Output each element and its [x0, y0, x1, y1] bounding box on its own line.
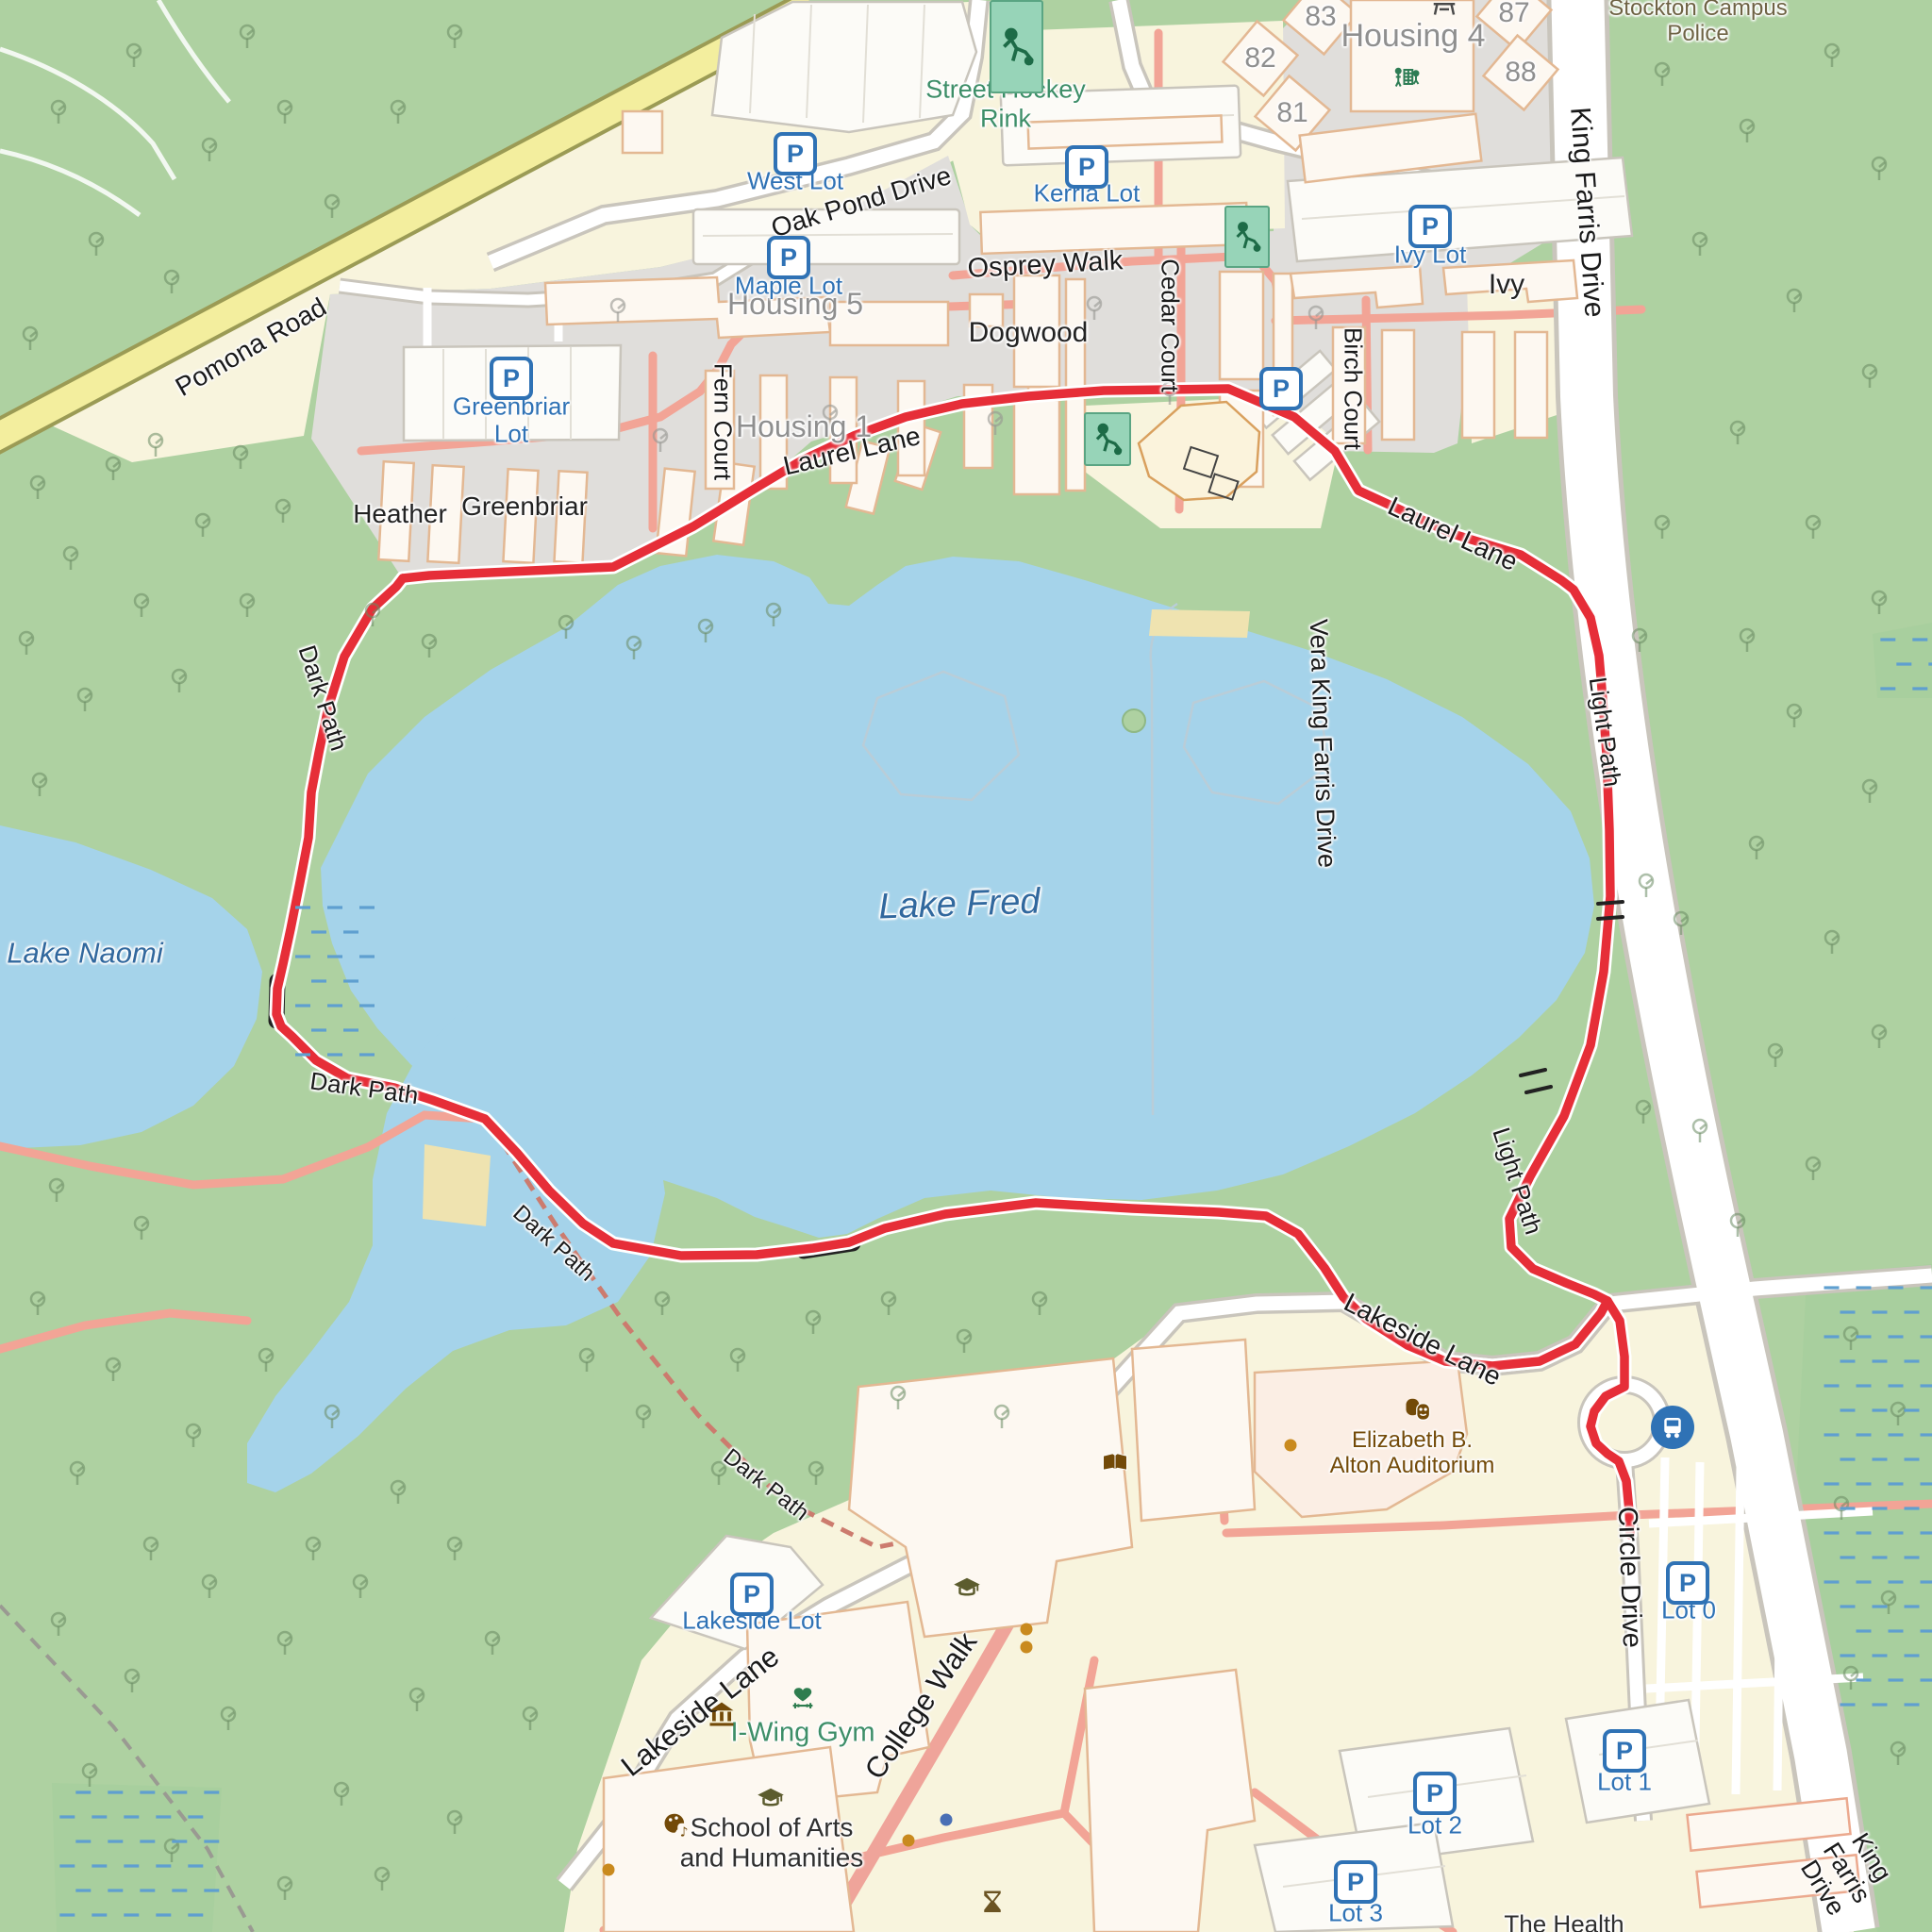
- hourglass-icon: [978, 1889, 1007, 1917]
- label-dogwood: Dogwood: [969, 317, 1089, 349]
- label-greenbriar: Greenbriar: [461, 491, 588, 522]
- parking-icon: P: [1603, 1729, 1646, 1773]
- parking-icon: P: [1413, 1772, 1457, 1815]
- label-num-88: 88: [1505, 57, 1536, 89]
- label-king-farris-drive-bottom: King Farris Drive: [1788, 1814, 1906, 1932]
- basketball-court: [1224, 206, 1270, 268]
- label-i-wing-gym: I-Wing Gym: [730, 1718, 874, 1749]
- label-birch-court: Birch Court: [1339, 327, 1366, 450]
- label-dark-path-3: Dark Path: [508, 1200, 599, 1287]
- label-college-walk: College Walk: [858, 1626, 984, 1786]
- masks-icon: [1404, 1395, 1432, 1424]
- label-num-87: 87: [1498, 0, 1529, 29]
- label-dark-path-2: Dark Path: [308, 1067, 421, 1109]
- label-elizabeth-alton-auditorium: Elizabeth B. Alton Auditorium: [1330, 1427, 1495, 1478]
- parking-icon: P: [774, 132, 817, 175]
- label-stockton-campus-police: Stockton Campus Police: [1608, 0, 1787, 46]
- label-pomona-road: Pomona Road: [171, 292, 332, 403]
- parking-icon: P: [767, 236, 810, 279]
- label-osprey-walk: Osprey Walk: [967, 245, 1124, 284]
- bus-stop-icon: [1651, 1406, 1694, 1449]
- poi-dot: [903, 1835, 915, 1847]
- label-cedar-court: Cedar Court: [1156, 258, 1183, 392]
- label-school-of-arts: School of Arts and Humanities: [680, 1812, 864, 1872]
- label-lot-2: Lot 2: [1407, 1811, 1462, 1839]
- parking-icon: P: [490, 357, 533, 400]
- label-heather: Heather: [353, 499, 447, 529]
- playground-icon: [1392, 65, 1421, 93]
- svg-text:♪: ♪: [680, 1825, 689, 1840]
- hockey-court: [990, 0, 1043, 93]
- parking-icon: P: [1408, 205, 1452, 248]
- gradcap-icon: [757, 1785, 785, 1813]
- poi-dot: [941, 1814, 953, 1826]
- label-vera-king-farris-drive: Vera King Farris Drive: [1304, 619, 1341, 869]
- label-the-health: The Health: [1504, 1910, 1624, 1932]
- label-laurel-lane-e: Laurel Lane: [1383, 491, 1522, 576]
- campus-map-canvas[interactable]: Lake FredLake NaomiHousing 4Housing 5Hou…: [0, 0, 1932, 1932]
- label-ivy: Ivy: [1489, 269, 1524, 301]
- gym-icon: [789, 1684, 817, 1712]
- label-light-path-n: Light Path: [1583, 675, 1625, 789]
- label-king-farris-drive-top: King Farris Drive: [1563, 106, 1609, 318]
- parking-icon: P: [1666, 1561, 1709, 1605]
- poi-dot: [1021, 1641, 1033, 1654]
- poi-dot: [1021, 1624, 1033, 1636]
- label-num-82: 82: [1244, 42, 1275, 75]
- label-lake-naomi: Lake Naomi: [7, 936, 162, 969]
- volleyball-court: [1084, 412, 1131, 466]
- label-dark-path-4: Dark Path: [719, 1443, 814, 1525]
- parking-icon: P: [1065, 145, 1108, 189]
- book-icon: [1101, 1450, 1129, 1478]
- parking-icon: P: [1334, 1860, 1377, 1904]
- label-fern-court: Fern Court: [708, 363, 736, 480]
- palette-icon: ♪: [662, 1810, 691, 1839]
- museum-icon: [708, 1700, 736, 1728]
- label-greenbriar-lot: Greenbriar Lot: [453, 393, 570, 449]
- label-light-path-s: Light Path: [1487, 1124, 1547, 1238]
- label-lake-fred: Lake Fred: [878, 882, 1041, 928]
- parking-icon: P: [1259, 367, 1303, 410]
- label-housing-4: Housing 4: [1341, 18, 1485, 54]
- label-lakeside-lane-w: Lakeside Lane: [615, 1640, 785, 1783]
- poi-dot: [603, 1864, 615, 1876]
- map-labels-layer: Lake FredLake NaomiHousing 4Housing 5Hou…: [0, 0, 1932, 1932]
- gradcap-icon: [953, 1574, 981, 1603]
- label-circle-drive: Circle Drive: [1611, 1507, 1647, 1649]
- picnic-icon: [1430, 0, 1458, 22]
- label-num-83: 83: [1305, 1, 1336, 33]
- parking-icon: P: [730, 1573, 774, 1616]
- label-num-81: 81: [1276, 97, 1307, 129]
- label-dark-path-1: Dark Path: [292, 641, 353, 754]
- poi-dot: [1285, 1440, 1297, 1452]
- label-lakeside-lane-e: Lakeside Lane: [1340, 1288, 1507, 1392]
